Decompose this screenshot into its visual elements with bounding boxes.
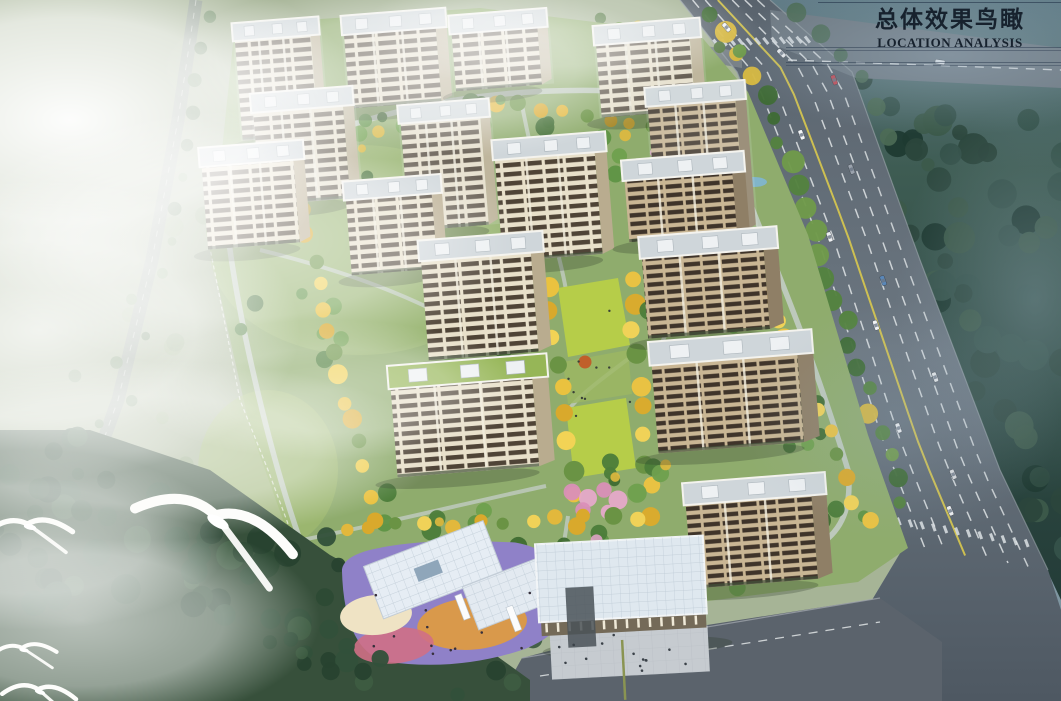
title-block: 总体效果鸟瞰 LOCATION ANALYSIS (875, 6, 1025, 51)
title-rule-top (818, 2, 1061, 3)
rendering-canvas: 总体效果鸟瞰 LOCATION ANALYSIS (0, 0, 1061, 701)
page-title-english: LOCATION ANALYSIS (875, 35, 1025, 51)
title-rule (786, 62, 1061, 63)
page-title-chinese: 总体效果鸟瞰 (875, 6, 1025, 34)
aerial-rendering (0, 0, 1061, 701)
title-rule (786, 65, 1061, 66)
